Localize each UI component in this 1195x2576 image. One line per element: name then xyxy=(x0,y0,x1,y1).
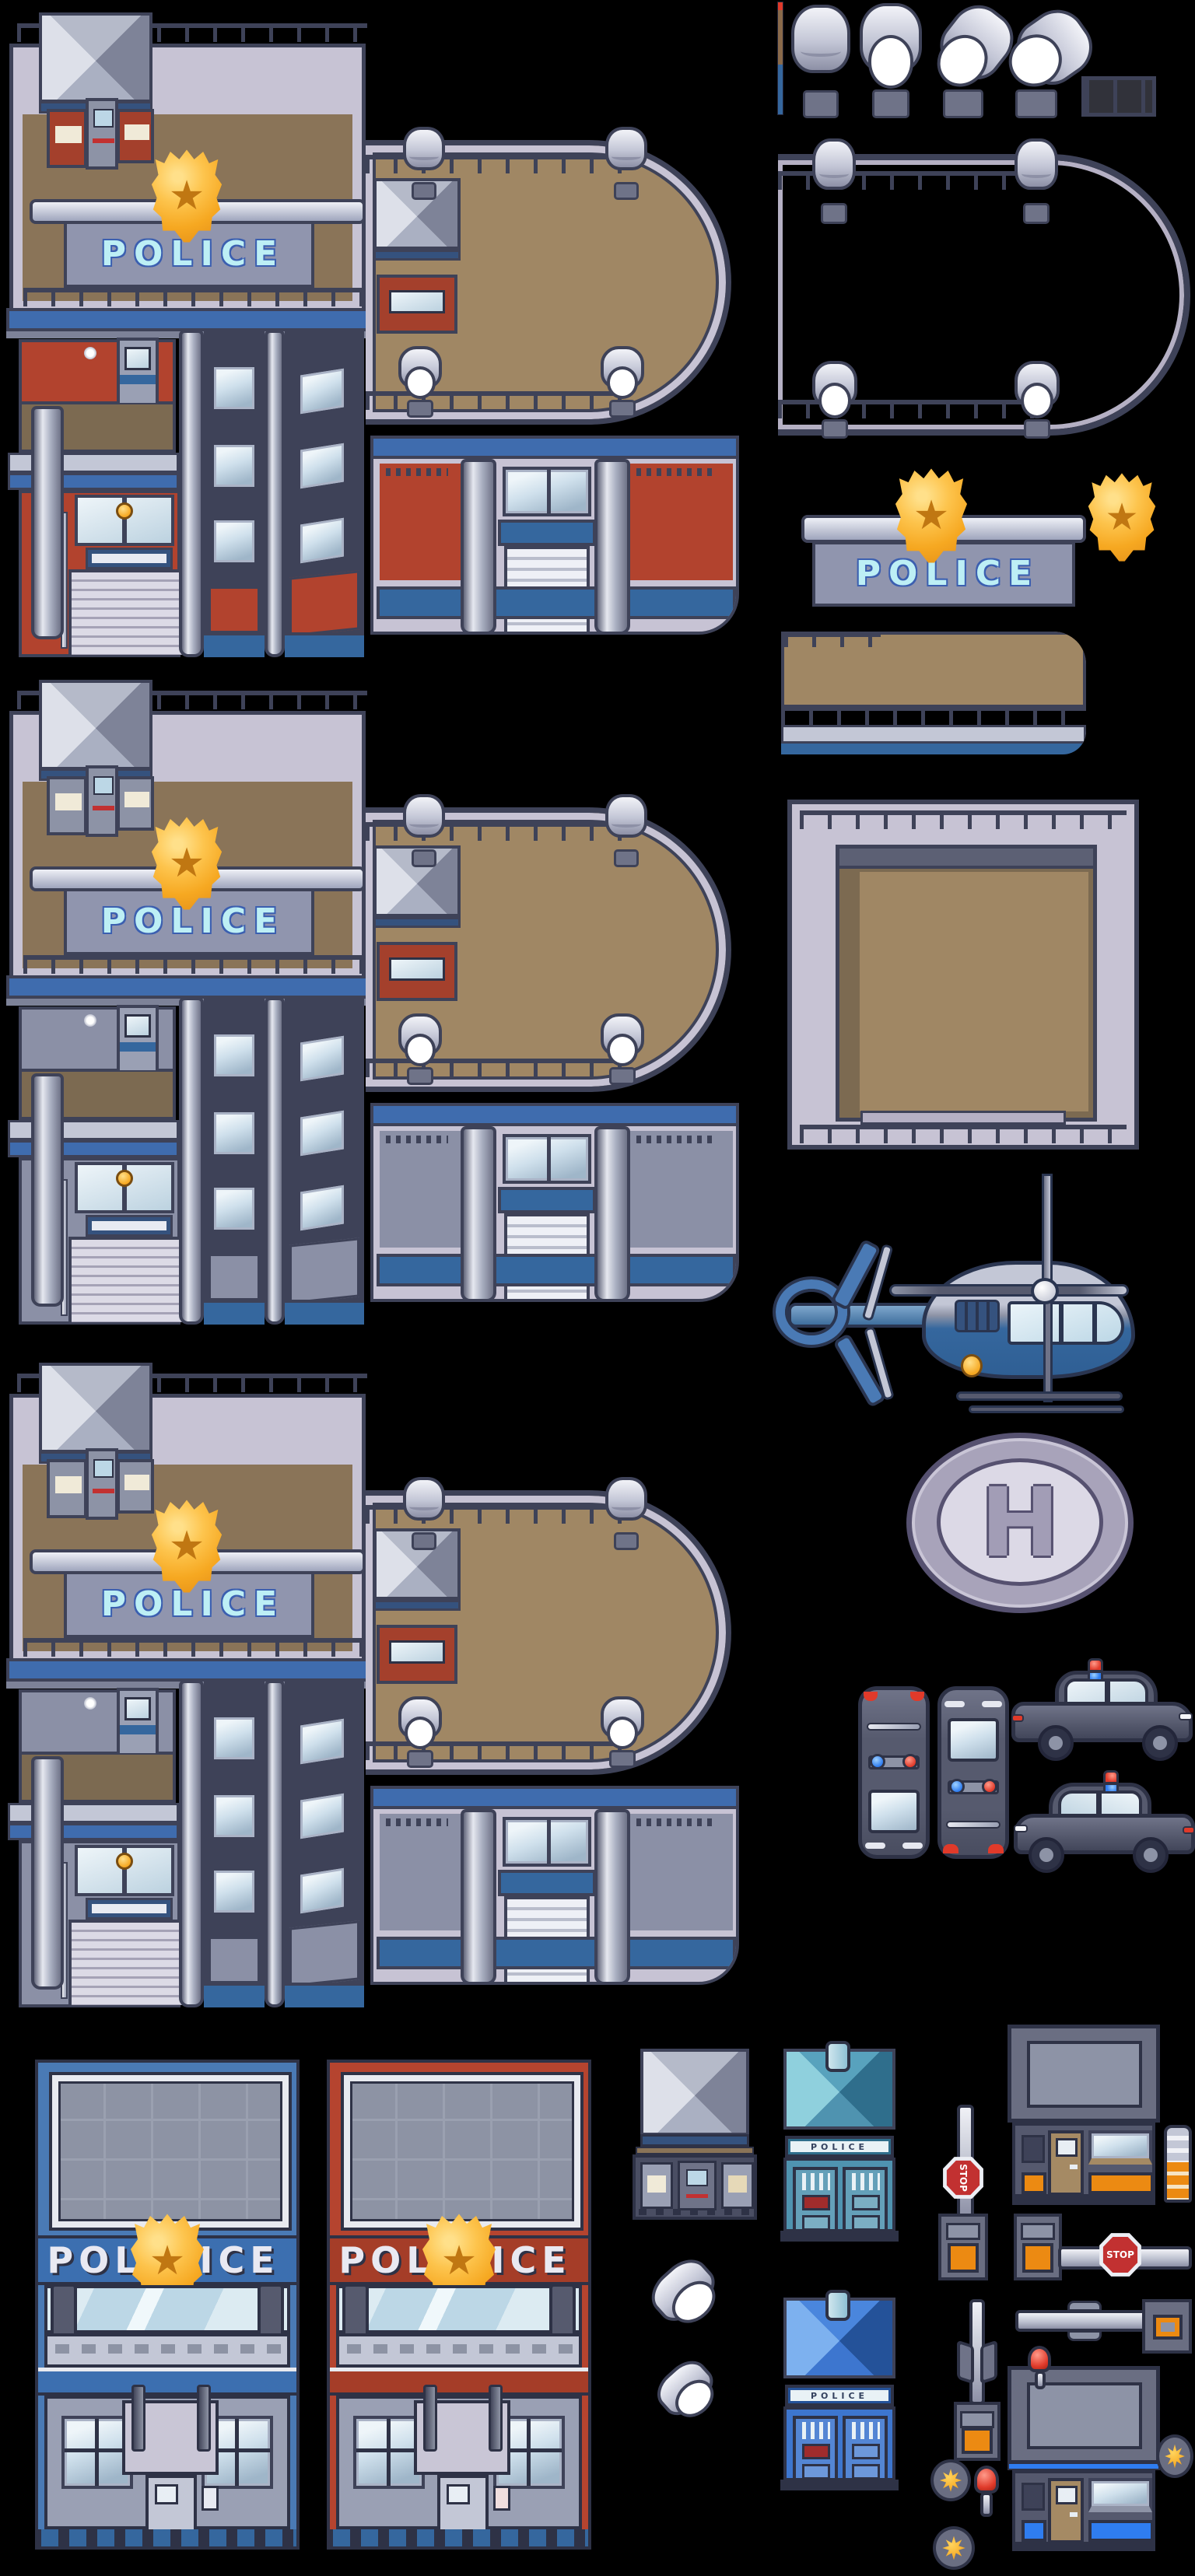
tower-accent xyxy=(209,1254,260,1300)
feet xyxy=(639,2209,754,2215)
wall-terminal xyxy=(117,1688,159,1756)
canopy-post xyxy=(423,2385,437,2452)
headlight xyxy=(902,1843,923,1849)
window xyxy=(211,1714,258,1762)
terminal-screen xyxy=(124,347,151,370)
helipad: H xyxy=(906,1433,1134,1613)
right-wing xyxy=(370,1103,739,1325)
star-icon xyxy=(940,2469,962,2491)
base-panel xyxy=(960,2411,994,2428)
skylight-icon xyxy=(640,2049,749,2136)
callbox-body xyxy=(783,2406,895,2481)
police-station-red: POLICE ★ xyxy=(6,17,759,657)
rooftop-terrace xyxy=(366,140,731,425)
pillar xyxy=(342,2284,369,2341)
blue-panel xyxy=(1022,2520,1046,2542)
blue-panel xyxy=(1088,2520,1154,2542)
notice-board xyxy=(377,1625,457,1684)
blue-stripe xyxy=(38,2368,296,2396)
booth-door xyxy=(1048,2478,1084,2543)
machine xyxy=(640,2162,673,2209)
gate-arm-horizontal xyxy=(1015,2310,1149,2332)
police-callbox-teal: POLICE xyxy=(780,2044,899,2242)
wing-base-band xyxy=(377,1254,736,1286)
kiosk-body xyxy=(633,2154,757,2220)
window-tower xyxy=(204,997,265,1325)
wall-lamp-icon xyxy=(84,1014,96,1027)
terminal-screen xyxy=(124,1697,151,1720)
taillight xyxy=(1183,1826,1195,1834)
tile-dashes xyxy=(347,2344,573,2354)
wing-accent xyxy=(630,464,733,580)
wheel xyxy=(1029,1837,1064,1873)
star-medallion xyxy=(1156,2434,1193,2478)
light-band xyxy=(336,2333,582,2368)
column xyxy=(265,1680,285,2007)
booth-base xyxy=(1012,2197,1155,2205)
wing-wall xyxy=(370,459,739,635)
mid-railing xyxy=(23,288,364,306)
blue-stripe xyxy=(1008,2462,1160,2470)
wheel xyxy=(1142,1725,1178,1761)
entrance-sign-panel xyxy=(92,1221,166,1230)
roof-bar xyxy=(860,1111,1066,1125)
window-mullion xyxy=(547,1137,551,1181)
skylight-band xyxy=(640,2134,749,2147)
booth-roof-panel xyxy=(1027,2382,1142,2449)
blue-trim-band xyxy=(6,308,372,331)
orange-slot xyxy=(962,2427,993,2454)
terminal xyxy=(86,1448,118,1520)
sign-label-pol: POL xyxy=(46,2238,144,2282)
booth-body xyxy=(1012,2470,1155,2545)
taillight xyxy=(1011,1714,1024,1722)
red-stripe xyxy=(330,2368,588,2396)
entrance-steps xyxy=(68,1237,187,1322)
stop-sign: STOP xyxy=(1099,2232,1142,2277)
door-sign xyxy=(202,2486,219,2511)
roof-floor xyxy=(860,872,1088,1111)
terminal-screen xyxy=(93,776,114,795)
headlight xyxy=(865,1843,885,1849)
spotlight-off-icon xyxy=(401,794,447,867)
rotor-hub xyxy=(1031,1278,1059,1304)
spotlight-off xyxy=(789,5,853,118)
notice-machines xyxy=(47,765,154,842)
bollard-top xyxy=(1167,2128,1189,2162)
booth-door xyxy=(1048,2130,1084,2196)
callbox-banner: POLICE xyxy=(785,2385,894,2406)
entrance-sign xyxy=(86,548,173,569)
police-callbox-blue: POLICE xyxy=(780,2293,899,2490)
badge-emblem-icon xyxy=(961,1354,983,1377)
notice-board xyxy=(47,1459,87,1518)
terminal-screen xyxy=(93,109,114,128)
star-medallion xyxy=(933,2526,975,2570)
taillight xyxy=(943,1844,958,1853)
roof-finial xyxy=(825,2290,850,2321)
poster xyxy=(55,126,82,143)
canopy-post xyxy=(197,2385,211,2452)
column xyxy=(179,330,204,657)
notice-machines xyxy=(47,98,154,174)
skylight-band xyxy=(373,250,461,261)
wheel xyxy=(1133,1837,1169,1873)
callbox-door xyxy=(843,2167,888,2232)
roof-panel xyxy=(344,2075,580,2228)
column xyxy=(265,330,285,657)
beacon-stem xyxy=(1035,2371,1046,2389)
window xyxy=(297,1715,347,1768)
booth-window-wide xyxy=(1088,2478,1152,2512)
wall-lamp-icon xyxy=(84,1697,96,1710)
eave-blue xyxy=(781,744,1086,754)
gate-arm-base xyxy=(954,2402,1001,2461)
rotor-blade-horizontal xyxy=(889,1284,1129,1297)
spotlight-off-icon xyxy=(401,127,447,200)
spotlight-off-icon xyxy=(811,138,857,224)
tower-base xyxy=(285,632,364,657)
rooftop-terrace xyxy=(366,807,731,1092)
spotlight-off-icon xyxy=(401,1477,447,1550)
headlight xyxy=(1179,1713,1193,1720)
window-mullion xyxy=(547,470,551,513)
skylight-icon xyxy=(39,1363,152,1453)
wall-lamp-icon xyxy=(84,347,96,359)
window xyxy=(211,1109,258,1157)
column xyxy=(461,1126,496,1302)
entrance-sign-panel xyxy=(92,554,166,563)
entrance-doors xyxy=(75,495,174,546)
notice-board xyxy=(117,109,154,163)
tower-base xyxy=(204,1983,265,2007)
roof-railing xyxy=(784,633,881,647)
eave-fascia xyxy=(781,725,1086,744)
pillar xyxy=(258,2284,284,2341)
booth-window-small xyxy=(1022,2135,1045,2163)
machine xyxy=(721,2162,754,2209)
window-tower xyxy=(204,1680,265,2007)
police-car-side-right xyxy=(1011,1669,1193,1761)
tile-dashes xyxy=(55,2344,281,2354)
roof-panel xyxy=(52,2075,289,2228)
terminal xyxy=(86,765,118,837)
column xyxy=(179,1680,204,2007)
column xyxy=(594,1809,630,1985)
entrance-sign xyxy=(86,1898,173,1920)
window-tower-angled xyxy=(285,1680,364,2007)
skylight-icon xyxy=(39,12,152,103)
mid-railing xyxy=(23,1638,364,1657)
terminal-stripe xyxy=(120,375,156,384)
entrance-doors xyxy=(75,1162,174,1213)
star-icon xyxy=(942,2536,965,2560)
wall-terminal xyxy=(117,338,159,406)
window xyxy=(297,439,347,492)
spotlight-on-icon xyxy=(811,361,859,439)
garage-lintel xyxy=(498,520,596,546)
column xyxy=(461,1809,496,1985)
wing-accent xyxy=(630,1131,733,1248)
booth-window-wide xyxy=(1088,2130,1152,2165)
entrance-sign xyxy=(86,1215,173,1237)
window xyxy=(297,1864,347,1917)
sign-label-pol: POL xyxy=(338,2238,436,2282)
garage-lintel xyxy=(498,1187,596,1213)
notice-board xyxy=(377,942,457,1001)
rooftop-railing-curved xyxy=(778,154,1190,436)
police-station-gray-2: POLICE ★ xyxy=(6,1367,759,2007)
star-medallion xyxy=(930,2459,971,2501)
garage-window xyxy=(503,1817,591,1867)
column xyxy=(31,406,64,639)
skylight-band xyxy=(373,1600,461,1611)
window xyxy=(211,1867,258,1916)
headlight xyxy=(944,1701,965,1707)
base xyxy=(330,2529,588,2546)
badge-star-icon: ★ xyxy=(1086,471,1158,563)
blue-light xyxy=(1103,1783,1119,1794)
spotlight-off-icon xyxy=(604,127,649,200)
base-panel xyxy=(946,2223,980,2240)
callbox-door xyxy=(843,2416,888,2481)
callbox-body xyxy=(783,2158,895,2232)
wing-base-band xyxy=(377,586,736,619)
callbox-door xyxy=(793,2167,838,2232)
vents xyxy=(636,1818,714,1826)
wing-wall xyxy=(370,1126,739,1302)
police-car-top-facing-up xyxy=(937,1686,1009,1859)
roof-finial xyxy=(825,2041,850,2072)
stop-label: STOP xyxy=(1099,2232,1142,2277)
tower-accent xyxy=(209,1937,260,1983)
wing-blue-band xyxy=(370,436,739,459)
landing-skid xyxy=(969,1405,1124,1413)
booth-roof xyxy=(1008,2025,1160,2123)
window xyxy=(211,442,258,490)
traffic-bollard xyxy=(1164,2125,1192,2203)
blue-trim-band xyxy=(6,975,372,999)
poster xyxy=(124,124,149,140)
poster xyxy=(55,793,82,810)
column xyxy=(594,1126,630,1302)
roof-opening xyxy=(836,845,1097,1122)
spotlight-on-icon xyxy=(599,1013,646,1085)
wall-terminal xyxy=(117,1005,159,1073)
garage-window xyxy=(503,467,591,516)
vents xyxy=(636,468,714,476)
machine-terminal xyxy=(678,2161,717,2210)
red-light xyxy=(902,1754,918,1769)
tower-base xyxy=(285,1300,364,1325)
notice-board xyxy=(47,109,87,168)
spotlight-angled-right xyxy=(999,2,1074,118)
wing-accent xyxy=(380,464,461,580)
door-badge-icon xyxy=(116,1170,133,1187)
orange-slot xyxy=(1022,2243,1053,2273)
column xyxy=(265,997,285,1325)
blue-light xyxy=(1088,1671,1103,1682)
rooftop-terrace xyxy=(366,1490,731,1775)
window xyxy=(211,364,258,412)
terminal-slot xyxy=(93,806,114,810)
notice-board xyxy=(47,776,87,835)
garage-window xyxy=(503,1134,591,1184)
callbox-banner: POLICE xyxy=(785,2136,894,2158)
terminal-stripe xyxy=(120,1725,156,1734)
sign-label-ice: ICE xyxy=(482,2238,580,2282)
wing-accent xyxy=(630,1814,733,1930)
entrance-door xyxy=(437,2475,489,2532)
glass-band xyxy=(44,2285,290,2333)
right-wing xyxy=(370,1786,739,2007)
door-sign xyxy=(493,2486,510,2511)
police-storefront-blue: POL ICE ★ xyxy=(35,2060,300,2550)
cockpit-windows xyxy=(1008,1301,1124,1345)
notice-board xyxy=(117,1459,154,1514)
poster xyxy=(124,792,149,807)
right-wing xyxy=(370,436,739,657)
spotlight-off-icon xyxy=(604,794,649,867)
windshield xyxy=(948,1718,999,1762)
blue-trim-band xyxy=(6,1658,372,1682)
skylight-band xyxy=(373,917,461,928)
windshield xyxy=(868,1790,920,1833)
blue-light xyxy=(949,1779,965,1794)
column xyxy=(31,1756,64,1990)
column xyxy=(594,459,630,635)
landing-skid xyxy=(956,1391,1123,1401)
red-light xyxy=(982,1779,997,1794)
spotlight-on-icon xyxy=(599,1696,646,1768)
police-helicopter xyxy=(774,1171,1144,1418)
window-tower xyxy=(204,330,265,657)
mid-railing xyxy=(23,955,364,974)
terminal-screen xyxy=(124,1014,151,1038)
antenna xyxy=(777,2,783,115)
canopy-post xyxy=(489,2385,503,2452)
tower-base xyxy=(204,632,265,657)
tower-base xyxy=(285,1983,364,2007)
spotlight-on-icon xyxy=(1013,361,1061,439)
police-storefront-red: POL ICE ★ xyxy=(327,2060,591,2550)
notice-window xyxy=(389,957,445,981)
booth-body xyxy=(1012,2123,1155,2197)
booth-window-small xyxy=(1022,2483,1045,2511)
sign-board: POLICE xyxy=(812,541,1075,607)
spotlight-tilted-large xyxy=(640,2248,747,2354)
column xyxy=(461,459,496,635)
tower-accent xyxy=(289,570,359,636)
terminal-stripe xyxy=(120,1042,156,1052)
police-car-side-left xyxy=(1014,1781,1195,1873)
eave xyxy=(636,2147,754,2154)
lower-wall xyxy=(336,2396,582,2529)
entrance-steps xyxy=(68,569,187,655)
booth-roof xyxy=(1008,2366,1160,2464)
notice-board xyxy=(117,776,154,831)
railing-posts xyxy=(800,810,1127,829)
terminal xyxy=(86,98,118,170)
callbox-banner-label: POLICE xyxy=(790,2141,888,2152)
sign-label-ice: ICE xyxy=(191,2238,289,2282)
notice-board xyxy=(377,275,457,334)
wing-blue-band xyxy=(370,1786,739,1809)
callbox-base xyxy=(780,2231,899,2242)
beacon-stem xyxy=(980,2492,993,2517)
barrier-base xyxy=(1014,2214,1062,2280)
guard-booth-orange xyxy=(1008,2025,1160,2205)
vents xyxy=(386,1818,448,1826)
window xyxy=(211,1031,258,1080)
barrier-stop-vertical: STOP xyxy=(942,2156,984,2200)
orange-panel xyxy=(1088,2172,1154,2194)
notice-window xyxy=(389,1640,445,1664)
window xyxy=(297,1181,347,1234)
door-badge-icon xyxy=(116,502,133,520)
callbox-base xyxy=(780,2480,899,2490)
headlight xyxy=(982,1701,1002,1707)
wing-accent xyxy=(380,1814,461,1930)
terminal-screen xyxy=(93,1459,114,1478)
spotlight-on-icon xyxy=(397,1013,443,1085)
bollard-bottom xyxy=(1167,2162,1189,2200)
lower-wall xyxy=(44,2396,290,2529)
barrier-base xyxy=(938,2214,988,2280)
window xyxy=(297,1107,347,1160)
entrance-steps xyxy=(68,1920,187,2005)
notice-machines xyxy=(47,1448,154,1524)
tower-base xyxy=(204,1300,265,1325)
terminal-slot xyxy=(93,1489,114,1493)
eave-railing xyxy=(781,706,1086,725)
helipad-h-label: H xyxy=(912,1438,1128,1608)
poster xyxy=(55,1476,82,1493)
entrance-sign-panel xyxy=(92,1904,166,1913)
spotlight-off-icon xyxy=(604,1477,649,1550)
stop-label: STOP xyxy=(941,2157,985,2199)
garage-lintel xyxy=(498,1870,596,1896)
railing-posts xyxy=(800,1125,1127,1143)
tileset-sheet: POLICE ★ xyxy=(0,0,1195,2576)
window xyxy=(297,1790,347,1843)
notice-window xyxy=(389,290,445,313)
window-tower-angled xyxy=(285,330,364,657)
side-vent xyxy=(955,1300,1000,1332)
police-badge: ★ xyxy=(1086,471,1158,563)
red-beacon-icon xyxy=(1028,2346,1051,2372)
wheel xyxy=(1038,1725,1074,1761)
pillar xyxy=(51,2284,77,2341)
tower-accent xyxy=(289,1237,359,1304)
wing-base-band xyxy=(377,1937,736,1969)
booth-roof-panel xyxy=(1027,2041,1142,2108)
tower-accent xyxy=(289,1920,359,1986)
skylight-icon xyxy=(39,680,152,770)
arm-bracket xyxy=(1067,2301,1102,2312)
wing-wall xyxy=(370,1809,739,1985)
window xyxy=(211,1185,258,1233)
gate-arm-wing xyxy=(980,2340,997,2384)
base xyxy=(38,2529,296,2546)
orange-panel xyxy=(1022,2172,1046,2194)
trunk-bar xyxy=(867,1723,921,1731)
vents xyxy=(636,1136,714,1143)
star-icon xyxy=(1165,2445,1185,2469)
gate-arm-wing xyxy=(957,2340,974,2384)
window xyxy=(297,514,347,567)
vents xyxy=(386,1136,448,1143)
